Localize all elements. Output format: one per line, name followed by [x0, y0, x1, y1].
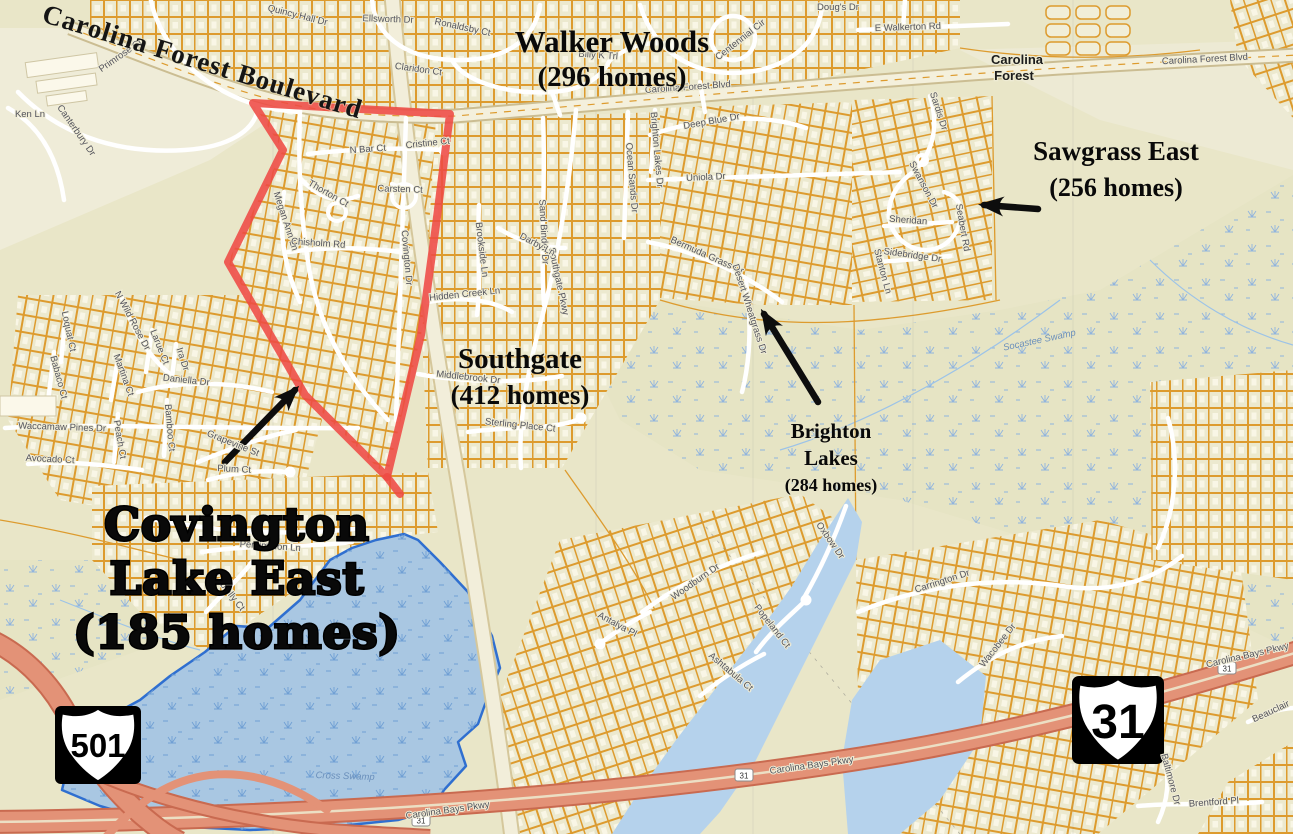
- shield-501-number: 501: [70, 727, 125, 764]
- annotation-walker-woods: Walker Woods: [515, 24, 709, 59]
- annotation-brighton-lakes: Lakes: [804, 446, 858, 470]
- road-label: Carsten Ct: [377, 183, 423, 196]
- arrow-sawgrass-east: [984, 205, 1038, 209]
- route-shield-501: 501: [55, 706, 141, 784]
- annotation-sawgrass-east: Sawgrass East: [1033, 136, 1199, 166]
- road-label: E Walkerton Rd: [875, 21, 942, 34]
- annotation-brighton-lakes: Brighton: [791, 419, 872, 443]
- annotation-southgate: Southgate: [458, 343, 582, 375]
- annotated-neighborhood-map: 501 31 313131 Primrose CtQuincy Hall DrE…: [0, 0, 1293, 834]
- place-label-forest: Forest: [994, 68, 1034, 83]
- road-label: Doug's Dr: [817, 2, 859, 13]
- route-shield-31: 31: [1072, 676, 1164, 764]
- shield-31-number: 31: [1091, 696, 1144, 749]
- map-canvas: 501 31 313131 Primrose CtQuincy Hall DrE…: [0, 0, 1293, 834]
- annotation-southgate: (412 homes): [451, 380, 590, 410]
- annotation-covington-lake-east: Covington: [104, 498, 370, 551]
- road-label: Ellsworth Dr: [362, 13, 414, 26]
- annotation-covington-lake-east: (185 homes): [73, 606, 401, 659]
- annotation-sawgrass-east: (256 homes): [1049, 173, 1183, 202]
- road-label: Cross Swamp: [315, 770, 374, 783]
- road-label: Plum Ct: [217, 463, 252, 476]
- annotation-walker-woods: (296 homes): [537, 61, 686, 93]
- road-label: Uniola Dr: [686, 171, 726, 184]
- road-label: Ken Ln: [15, 109, 45, 120]
- route-marker-number: 31: [740, 772, 749, 781]
- place-label-carolina: Carolina: [991, 52, 1044, 67]
- annotation-brighton-lakes: (284 homes): [785, 475, 878, 496]
- annotation-covington-lake-east: Lake East: [110, 552, 365, 605]
